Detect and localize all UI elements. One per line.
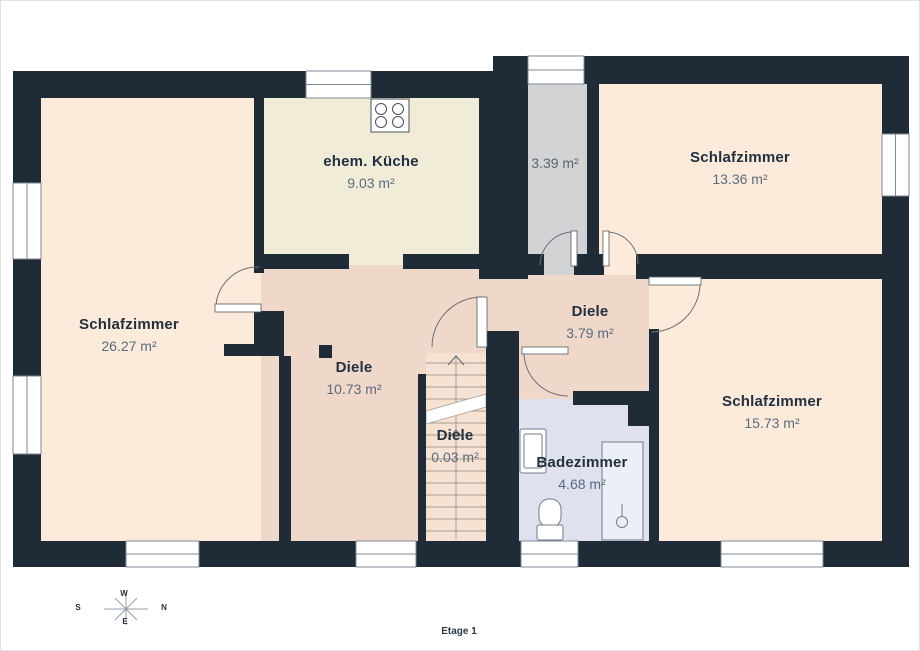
wall-right	[882, 56, 909, 567]
room-floor-schlafzimmer-unten	[649, 278, 882, 541]
room-floor-schlafzimmer-links	[41, 98, 284, 541]
window-icon	[306, 71, 371, 98]
wall-schlafzimmer-links-a	[254, 311, 284, 356]
floor-title: Etage 1	[384, 626, 534, 637]
wall-chimney	[479, 74, 528, 279]
floorplan-drawing	[1, 1, 920, 651]
wall-treppe-left	[418, 374, 426, 541]
floorplan-page: Schlafzimmer 26.27 m² ehem. Küche 9.03 m…	[0, 0, 920, 651]
window-icon	[13, 183, 41, 259]
window-icon	[882, 134, 909, 196]
wall-kueche-left	[254, 98, 264, 273]
column-marker	[319, 345, 332, 358]
window-icon	[126, 541, 199, 567]
wall-top-left	[13, 71, 493, 98]
wall-kueche-bottom-b	[403, 254, 479, 269]
compass-south-label: S	[68, 603, 88, 612]
window-icon	[528, 56, 584, 84]
sink-icon	[520, 429, 546, 473]
room-floor-abstellraum	[528, 84, 587, 275]
wall-abstellraum-right	[587, 84, 599, 254]
window-icon	[721, 541, 823, 567]
wall-diele-schlafzimmer	[649, 329, 659, 541]
wall-band-b	[574, 254, 604, 275]
wall-band-a	[528, 254, 544, 275]
compass-north-label: N	[154, 603, 174, 612]
shower-icon	[602, 442, 643, 540]
wall-kueche-bottom-a	[264, 254, 349, 269]
wall-band-c	[636, 254, 882, 279]
window-icon	[13, 376, 41, 454]
toilet-icon	[537, 499, 563, 540]
wall-treppe-right	[486, 331, 519, 541]
wall-bad-corner	[628, 391, 649, 426]
wall-left	[13, 71, 41, 567]
wall-schlafzimmer-links-b	[279, 356, 291, 541]
room-floors	[41, 84, 882, 541]
room-floor-schlafzimmer-oben	[599, 84, 882, 276]
stove-icon	[371, 99, 409, 132]
compass-east-label: E	[115, 617, 135, 626]
wall-schlafzimmer-links-stub	[224, 344, 254, 356]
window-icon	[356, 541, 416, 567]
window-icon	[521, 541, 578, 567]
compass-west-label: W	[114, 589, 134, 598]
